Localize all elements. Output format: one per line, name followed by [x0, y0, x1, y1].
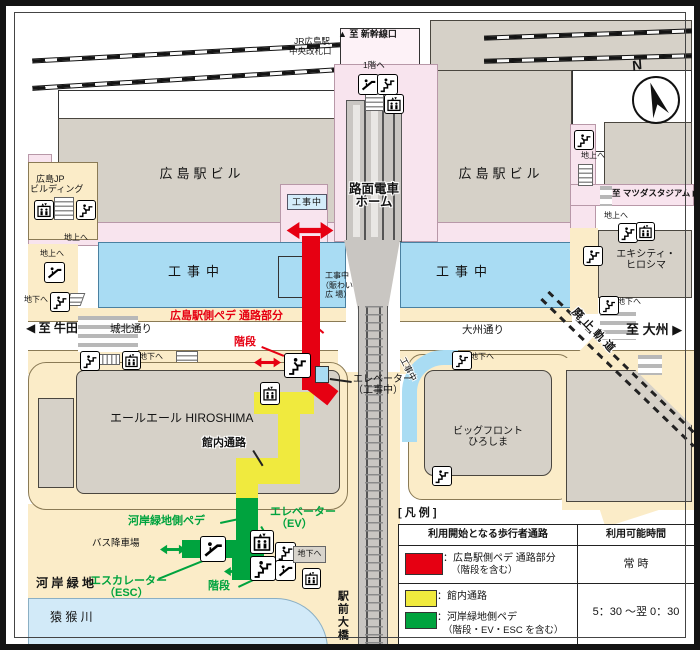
bus-drop-label: バス降車場	[92, 539, 140, 550]
elevator-uc-label-2: （工事中）	[353, 385, 403, 396]
elevator-icon	[636, 222, 655, 241]
tram-platform	[346, 100, 402, 242]
to-ground-label: 地上へ	[604, 212, 628, 221]
legend-r3-label: ：河岸緑地側ペデ	[437, 612, 517, 623]
compass-icon	[632, 76, 680, 124]
to-mazda-label: 至 マツダスタジアム ▶	[612, 189, 699, 199]
tram-home-label-1: 路面電車	[344, 182, 404, 196]
tram-home-label-2: ホーム	[344, 195, 404, 209]
arrow-double-icon	[254, 356, 281, 369]
escalator-icon	[275, 560, 296, 581]
elevator-icon	[302, 568, 321, 589]
tram-rail	[382, 101, 384, 243]
yale-annex	[38, 398, 74, 488]
building-top-right-band	[430, 20, 692, 76]
tram-rail	[364, 101, 366, 243]
legend-r2-label: ：館内通路	[437, 591, 487, 602]
legend-swatch-green	[405, 612, 437, 629]
to-shinkansen-label: ▲ 至 新幹線口	[338, 29, 397, 39]
to-ground-label: 地上へ	[64, 234, 88, 243]
jp-building-label-1: 広島JP	[36, 174, 65, 184]
bigfront-label-2: ひろしま	[426, 437, 550, 448]
elevator-uc-label-1: エレベーター	[353, 374, 413, 385]
arrow-double-icon	[224, 565, 249, 578]
stairs-icon	[574, 130, 594, 150]
legend-swatch-red	[405, 553, 443, 575]
legend-r1-sub: （階段を含む）	[451, 566, 518, 577]
esc-label-1: エスカレーター	[90, 575, 167, 587]
construction-right-label: 工事中	[436, 265, 493, 280]
underground-entrance: 地下へ	[293, 546, 326, 563]
escalator-icon	[200, 536, 226, 562]
railway-track	[32, 66, 356, 91]
to-ground-label: 地上へ	[40, 250, 64, 259]
staircase	[54, 197, 74, 220]
crosswalk-mazda	[600, 186, 612, 206]
elevator-icon	[384, 94, 404, 114]
ekicity-label-2: ヒロシマ	[604, 260, 688, 271]
legend-col-divider	[577, 525, 578, 644]
tram-ties	[365, 306, 383, 650]
stairs-icon	[50, 292, 70, 312]
station-building-right	[430, 70, 572, 230]
platform-slot	[371, 105, 378, 237]
johoku-street-label: 城北通り	[110, 324, 152, 336]
jr-gate-label-2: 中央改札口	[289, 47, 332, 57]
staircase	[578, 164, 593, 186]
elevator-icon	[122, 351, 141, 370]
legend-r23-hours: 5：30 ～翌 0：30	[578, 606, 694, 618]
stairs-icon	[80, 351, 100, 371]
station-building-right-label: 広島駅ビル	[434, 167, 568, 182]
to-underground-label: 地下へ	[139, 353, 163, 362]
elevator-icon	[250, 530, 274, 554]
yale-building	[76, 370, 340, 494]
legend-row-divider	[399, 583, 695, 584]
arrow-double-icon	[160, 543, 186, 556]
legend-title: [ 凡 例 ]	[398, 507, 437, 519]
crosswalk-haishi-2	[638, 355, 662, 375]
legend-r1-label: ：広島駅側ペデ 通路部分	[443, 553, 556, 564]
route-yellow-seg2	[278, 412, 300, 460]
station-building-left-label: 広島駅ビル	[132, 167, 272, 182]
red-stairs-label: 階段	[234, 336, 256, 348]
ekicity-sidewalk	[570, 228, 598, 314]
red-route-label: 広島駅側ペデ 通路部分	[170, 310, 283, 322]
escalator-icon	[358, 74, 379, 95]
kagan-pede-label: 河岸緑地側ペデ	[128, 515, 205, 527]
to-underground-label: 地下へ	[24, 296, 48, 305]
ev-label-2: （EV）	[276, 518, 313, 530]
ev-label-1: エレベーター	[270, 506, 336, 518]
route-yellow-seg3	[236, 458, 300, 484]
legend-r3-sub: （階段・EV・ESC を含む）	[443, 626, 563, 637]
construction-elevator-block	[278, 256, 304, 298]
stairs-icon	[599, 296, 619, 315]
legend-header-divider	[399, 545, 695, 546]
construction-badge: 工事中	[287, 194, 327, 210]
ekimae-ohashi-label: 駅前大橋	[336, 590, 348, 642]
nigiwai-label-3: 広 場）	[325, 291, 351, 300]
oshu-street-label: 大州通り	[462, 325, 504, 337]
to-underground-label: 地下へ	[470, 353, 494, 362]
construction-badge-label: 工事中	[292, 197, 322, 207]
nigiwai-label-1: 工事中	[325, 272, 349, 281]
stairs-icon	[250, 556, 276, 581]
construction-left-label: 工事中	[168, 265, 225, 280]
stairs-icon	[377, 74, 398, 95]
arrow-down-icon	[304, 237, 319, 259]
legend-r1-hours: 常 時	[578, 558, 694, 570]
stairs-icon	[583, 246, 603, 266]
escalator-icon	[44, 262, 65, 283]
elevator-icon	[34, 200, 54, 220]
building-right-small	[604, 122, 692, 186]
legend-col-hours: 利用可能時間	[578, 529, 694, 540]
stairs-icon	[432, 466, 452, 486]
ekicity-label-1: エキシティ・	[604, 249, 688, 260]
tram-rail	[393, 101, 395, 243]
stairs-icon	[284, 353, 311, 378]
to-underground-label: 地下へ	[617, 298, 641, 307]
elevator-icon	[260, 382, 280, 405]
staircase	[365, 93, 384, 111]
legend-col-route: 利用開始となる歩行者通路	[399, 529, 577, 540]
tram-track-bridge	[358, 306, 388, 650]
tram-track-funnel	[344, 240, 400, 310]
enko-river-label: 猿 猴 川	[50, 611, 93, 624]
to-ground-label: 地上へ	[581, 152, 605, 161]
legend-swatch-yellow	[405, 590, 437, 607]
elevator-uc-box	[315, 366, 329, 383]
green-stairs-label: 階段	[208, 580, 230, 592]
station-map: N	[0, 0, 700, 650]
yale-building-label: エールエール HIROSHIMA	[110, 412, 253, 425]
stairs-icon	[618, 223, 638, 243]
stairs-icon	[452, 351, 472, 370]
kagan-ryokuchi-label: 河 岸 緑 地	[36, 577, 94, 590]
to-ushita-label: ◀ 至 牛田	[26, 322, 78, 335]
staircase	[98, 354, 120, 365]
to-1f-label: 1階へ	[363, 61, 385, 71]
stairs-icon	[76, 200, 96, 220]
esc-label-2: （ESC）	[104, 587, 149, 599]
kannai-tsuro-label: 館内通路	[202, 437, 246, 449]
bigfront-label-1: ビッグフロント	[426, 426, 550, 437]
sidewalk-north-right	[400, 308, 572, 322]
legend-table: 利用開始となる歩行者通路 利用可能時間 ：広島駅側ペデ 通路部分 （階段を含む）…	[398, 524, 696, 645]
to-underground-label: 地下へ	[298, 550, 322, 559]
jp-building-label-2: ビルディング	[30, 184, 83, 194]
platform-slot	[353, 105, 360, 237]
to-ozu-label: 至 大州 ▶	[626, 323, 682, 338]
